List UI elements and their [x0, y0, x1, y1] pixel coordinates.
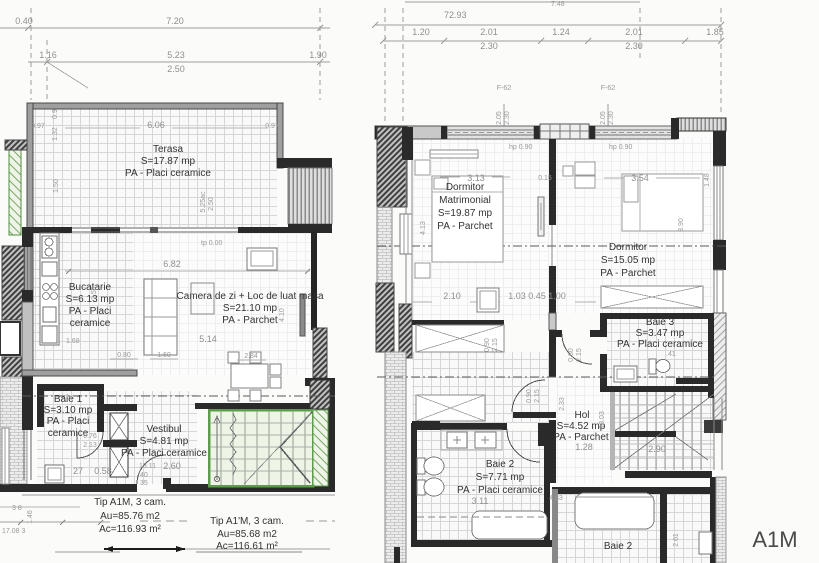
svg-text:PA - Parchet: PA - Parchet — [600, 268, 656, 279]
svg-text:2.05: 2.05 — [496, 111, 503, 125]
svg-text:6.82: 6.82 — [163, 259, 181, 269]
svg-text:Tip A1M, 3 cam.: Tip A1M, 3 cam. — [94, 497, 166, 508]
svg-text:2.30: 2.30 — [608, 111, 615, 125]
svg-text:2.15: 2.15 — [576, 348, 583, 362]
svg-text:PA - Parchet: PA - Parchet — [222, 315, 278, 326]
svg-text:1.60: 1.60 — [157, 352, 171, 359]
svg-text:0.15: 0.15 — [538, 175, 552, 182]
svg-text:Matrimonial: Matrimonial — [439, 195, 491, 206]
svg-text:5.25ac: 5.25ac — [200, 191, 207, 213]
svg-text:1.48: 1.48 — [704, 173, 711, 187]
svg-text:0.40: 0.40 — [15, 16, 33, 26]
svg-text:3 8: 3 8 — [12, 505, 22, 512]
svg-text:2.15: 2.15 — [492, 338, 499, 352]
svg-text:0.97: 0.97 — [31, 123, 45, 130]
svg-text:Vestibul: Vestibul — [146, 424, 181, 435]
svg-text:2.01: 2.01 — [480, 27, 498, 37]
svg-text:ceramice: ceramice — [70, 318, 111, 329]
svg-text:F-62: F-62 — [601, 85, 616, 92]
svg-text:3.90: 3.90 — [678, 218, 685, 232]
svg-text:PA - Parchet: PA - Parchet — [437, 221, 493, 232]
svg-text:0.80: 0.80 — [117, 352, 131, 359]
svg-text:1.85: 1.85 — [706, 27, 724, 37]
svg-text:A1M: A1M — [752, 527, 797, 552]
svg-text:2.61: 2.61 — [673, 533, 680, 547]
svg-text:1.28: 1.28 — [575, 442, 593, 452]
svg-text:40: 40 — [140, 472, 148, 479]
svg-text:S=7.71 mp: S=7.71 mp — [476, 472, 525, 483]
svg-text:tp 0.00: tp 0.00 — [201, 240, 223, 247]
svg-text:S=19.87 mp: S=19.87 mp — [438, 208, 493, 219]
svg-text:4.10: 4.10 — [279, 308, 286, 322]
svg-text:4.13: 4.13 — [420, 221, 427, 235]
svg-text:5.14: 5.14 — [199, 334, 217, 344]
svg-text:2.30: 2.30 — [480, 41, 498, 51]
svg-text:3.11: 3.11 — [472, 496, 489, 506]
svg-text:0.80: 0.80 — [568, 348, 575, 362]
svg-text:7.20: 7.20 — [166, 16, 184, 26]
svg-text:27: 27 — [73, 466, 83, 476]
svg-text:2.15: 2.15 — [534, 389, 541, 403]
svg-text:2.30: 2.30 — [504, 111, 511, 125]
svg-text:Terasa: Terasa — [153, 144, 183, 155]
svg-text:PA - Placi ceramice: PA - Placi ceramice — [457, 485, 543, 496]
svg-text:Baie 2: Baie 2 — [486, 459, 515, 470]
svg-text:Ac=116.61 m²: Ac=116.61 m² — [216, 541, 278, 552]
svg-text:1.32: 1.32 — [52, 127, 59, 141]
svg-text:72.93: 72.93 — [444, 10, 467, 20]
svg-text:2.90: 2.90 — [648, 444, 666, 454]
svg-text:17.08 3: 17.08 3 — [2, 528, 25, 535]
svg-text:PA - Placi ceramice: PA - Placi ceramice — [121, 448, 207, 459]
svg-text:0.97: 0.97 — [265, 123, 279, 130]
svg-text:.41: .41 — [666, 351, 676, 358]
svg-text:0.58: 0.58 — [94, 466, 112, 476]
svg-text:7.48: 7.48 — [551, 1, 565, 8]
svg-text:1.50: 1.50 — [91, 286, 98, 300]
svg-text:PA - Placi ceramice: PA - Placi ceramice — [125, 168, 211, 179]
svg-text:1.90: 1.90 — [309, 50, 327, 60]
svg-text:2.50: 2.50 — [208, 197, 215, 211]
svg-text:1.68: 1.68 — [66, 338, 80, 345]
svg-text:S=15.05 mp: S=15.05 mp — [601, 255, 656, 266]
svg-text:6.06: 6.06 — [147, 120, 165, 130]
svg-text:PA - Placi: PA - Placi — [47, 416, 90, 427]
svg-text:1.50: 1.50 — [53, 179, 60, 193]
svg-text:1.03 0.45 1.00: 1.03 0.45 1.00 — [508, 291, 566, 301]
svg-text:Ac=116.93 m²: Ac=116.93 m² — [99, 524, 161, 535]
svg-text:5.23: 5.23 — [167, 50, 185, 60]
svg-text:Au=85.76 m2: Au=85.76 m2 — [100, 511, 160, 522]
svg-text:2.30: 2.30 — [625, 41, 643, 51]
svg-text:S=3.47 mp: S=3.47 mp — [636, 328, 685, 339]
svg-text:1.24: 1.24 — [552, 27, 570, 37]
svg-text:18.11: 18.11 — [139, 463, 156, 470]
svg-text:S=4.81 mp: S=4.81 mp — [140, 436, 189, 447]
svg-text:Dormitor: Dormitor — [446, 182, 485, 193]
svg-text:F-62: F-62 — [497, 85, 512, 92]
svg-text:0.90: 0.90 — [484, 338, 491, 352]
svg-text:S=21.10 mp: S=21.10 mp — [223, 303, 278, 314]
svg-text:0.95: 0.95 — [52, 105, 59, 119]
svg-text:Tip A1'M, 3 cam.: Tip A1'M, 3 cam. — [210, 516, 284, 527]
svg-text:PA - Placi: PA - Placi — [69, 306, 112, 317]
svg-text:Camera de zi + Loc de luat mas: Camera de zi + Loc de luat masa — [176, 291, 323, 302]
svg-text:3.13: 3.13 — [467, 173, 485, 183]
svg-text:Hol: Hol — [574, 410, 589, 421]
svg-text:1.20: 1.20 — [412, 27, 430, 37]
svg-text:S=3.10 mp: S=3.10 mp — [44, 405, 93, 416]
svg-text:2.10: 2.10 — [443, 291, 461, 301]
svg-text:Dormitor: Dormitor — [609, 242, 648, 253]
svg-text:Au=85.68 m2: Au=85.68 m2 — [217, 529, 277, 540]
svg-text:4.83: 4.83 — [549, 495, 563, 502]
svg-text:18.03: 18.03 — [599, 411, 606, 429]
svg-text:2.84: 2.84 — [244, 353, 258, 360]
svg-text:PA - Placi ceramice: PA - Placi ceramice — [617, 339, 703, 350]
svg-text:S=17.87 mp: S=17.87 mp — [141, 156, 196, 167]
svg-text:Baie 2: Baie 2 — [604, 541, 633, 552]
svg-text:2.60: 2.60 — [163, 461, 181, 471]
svg-text:2.13: 2.13 — [83, 442, 97, 449]
svg-text:2.05: 2.05 — [600, 111, 607, 125]
svg-text:2.33: 2.33 — [559, 397, 566, 411]
svg-text:2.50: 2.50 — [167, 64, 185, 74]
svg-text:0.90: 0.90 — [526, 389, 533, 403]
svg-text:2.01: 2.01 — [625, 27, 643, 37]
svg-text:1.16: 1.16 — [39, 50, 57, 60]
svg-text:hp 0.90: hp 0.90 — [509, 144, 532, 151]
svg-text:Baie 3: Baie 3 — [646, 317, 675, 328]
svg-text:0.76: 0.76 — [83, 433, 97, 440]
svg-text:Baie 1: Baie 1 — [54, 394, 83, 405]
svg-text:35: 35 — [140, 480, 148, 487]
svg-text:3.54: 3.54 — [631, 173, 649, 183]
svg-text:hp 0.90: hp 0.90 — [609, 144, 632, 151]
